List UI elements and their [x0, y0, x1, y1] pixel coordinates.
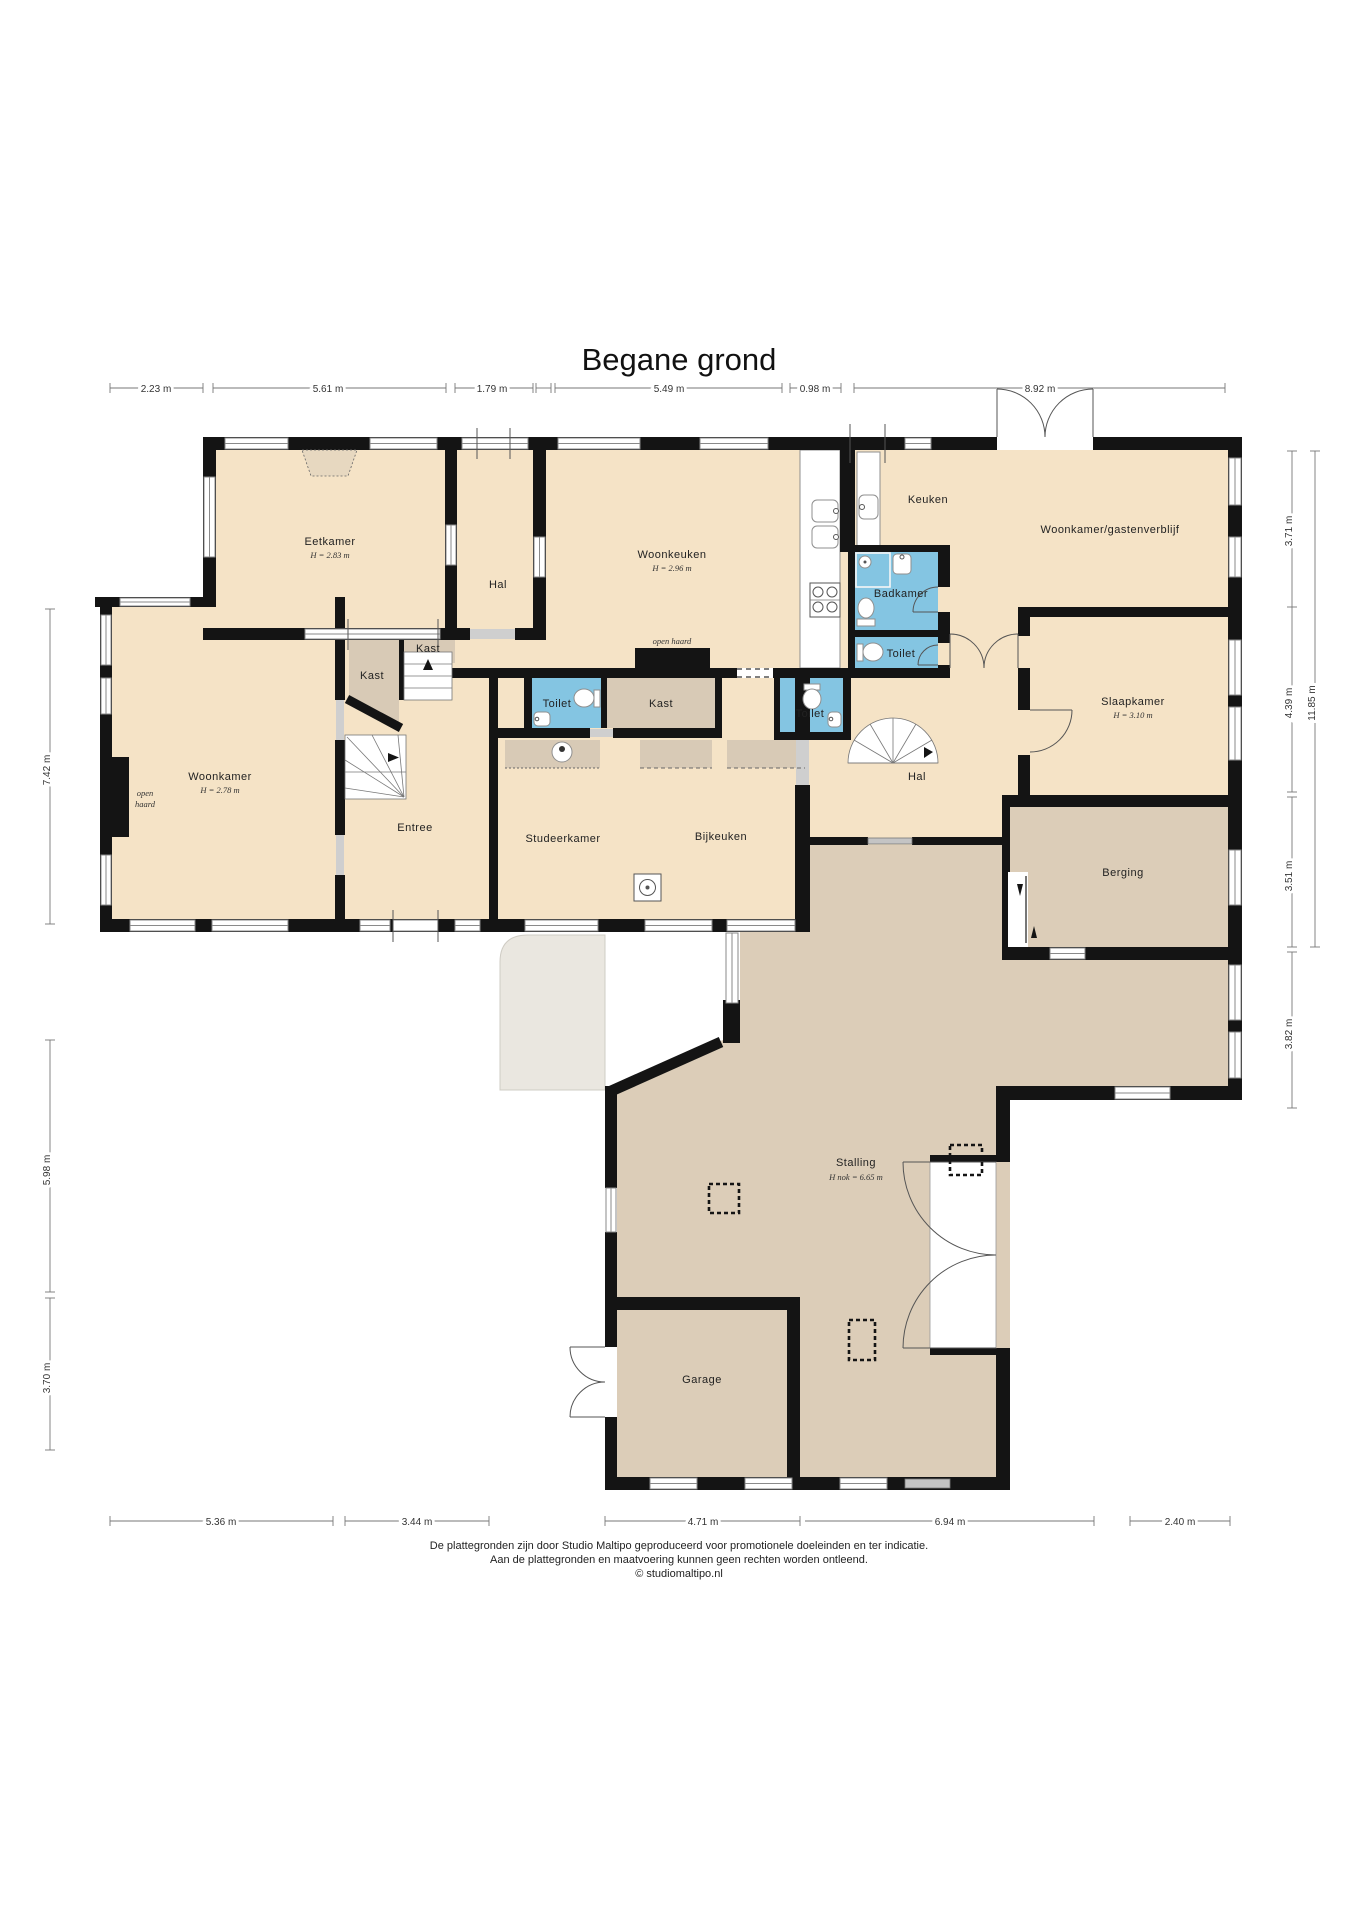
fireplace — [635, 648, 710, 668]
footer-line-1: De plattegronden zijn door Studio Maltip… — [430, 1540, 928, 1552]
room-label-entree: Entree — [397, 822, 432, 834]
dim-right-3: 3.51 m — [1284, 861, 1295, 892]
floor-plan-svg: 2.23 m 5.61 m 1.79 m 5.49 m 0.98 m 8.92 … — [0, 0, 1358, 1920]
dim-bottom-3: 4.71 m — [688, 1517, 719, 1528]
room-label-studeerkamer: Studeerkamer — [525, 833, 600, 845]
dim-bottom-2: 3.44 m — [402, 1517, 433, 1528]
room-label-woonkamer: Woonkamer — [188, 771, 252, 783]
room-label-keuken: Keuken — [908, 494, 948, 506]
entry-double-door — [997, 389, 1093, 450]
label-open-haard-woonkeuken: open haard — [653, 636, 692, 646]
toilet-icon — [857, 598, 875, 626]
room-height-woonkamer: H = 2.78 m — [199, 785, 239, 795]
chimney — [302, 450, 357, 476]
dim-right-5: 11.85 m — [1307, 685, 1318, 720]
footer-line-2: Aan de plattegronden en maatvoering kunn… — [490, 1554, 868, 1566]
hob-icon — [810, 583, 840, 617]
floor-fills — [100, 437, 1242, 1490]
room-label-kast-trap-boven: Kast — [416, 643, 440, 655]
room-height-slaapkamer: H = 3.10 m — [1112, 710, 1152, 720]
room-label-berging: Berging — [1102, 867, 1143, 879]
floorplan-page: 2.23 m 5.61 m 1.79 m 5.49 m 0.98 m 8.92 … — [0, 0, 1358, 1920]
washing-machine-icon — [634, 874, 661, 901]
dim-left-1: 7.42 m — [42, 755, 53, 786]
dim-top-1: 2.23 m — [141, 384, 172, 395]
room-label-hal-beneden: Hal — [908, 771, 926, 783]
room-label-garage: Garage — [682, 1374, 722, 1386]
dim-left-2: 5.98 m — [42, 1155, 53, 1186]
dim-right-4: 3.82 m — [1284, 1019, 1295, 1050]
label-open-haard-1: open — [137, 788, 154, 798]
footer-line-3: © studiomaltipo.nl — [635, 1568, 723, 1580]
room-label-bijkeuken: Bijkeuken — [695, 831, 747, 843]
dashed-opening — [737, 668, 773, 678]
room-label-woonkamer-gastenverblijf: Woonkamer/gastenverblijf — [1041, 524, 1180, 536]
dim-top-5: 0.98 m — [800, 384, 831, 395]
room-label-stalling: Stalling — [836, 1157, 876, 1169]
room-height-woonkeuken: H = 2.96 m — [651, 563, 691, 573]
dim-right-1: 3.71 m — [1284, 516, 1295, 547]
dim-top-3: 1.79 m — [477, 384, 508, 395]
footer: De plattegronden zijn door Studio Maltip… — [430, 1540, 928, 1580]
room-label-toilet-badkamer: Toilet — [887, 648, 916, 660]
room-height-stalling: H nok = 6.65 m — [828, 1172, 883, 1182]
dim-top-6: 8.92 m — [1025, 384, 1056, 395]
room-label-kast-trap: Kast — [360, 670, 384, 682]
dim-right-2: 4.39 m — [1284, 688, 1295, 719]
room-label-kast-gang: Kast — [649, 698, 673, 710]
page-title: Begane grond — [582, 342, 777, 377]
room-label-toilet-rechts: Toilet — [796, 708, 825, 720]
dim-top-4: 5.49 m — [654, 384, 685, 395]
straight-stair — [404, 652, 452, 700]
garage-double-door — [570, 1347, 605, 1417]
dim-bottom-4: 6.94 m — [935, 1517, 966, 1528]
dim-bottom-1: 5.36 m — [206, 1517, 237, 1528]
room-height-eetkamer: H = 2.83 m — [309, 550, 349, 560]
sliding-door — [868, 838, 912, 844]
fireplace — [104, 757, 129, 837]
dim-left-3: 3.70 m — [42, 1363, 53, 1394]
porch-area — [500, 935, 605, 1090]
dim-top-2: 5.61 m — [313, 384, 344, 395]
room-label-slaapkamer: Slaapkamer — [1101, 696, 1165, 708]
room-label-eetkamer: Eetkamer — [304, 536, 355, 548]
label-open-haard-2: haard — [135, 799, 156, 809]
room-label-toilet-links: Toilet — [543, 698, 572, 710]
dim-bottom-5: 2.40 m — [1165, 1517, 1196, 1528]
room-label-badkamer: Badkamer — [874, 588, 928, 600]
winder-stair — [345, 735, 406, 799]
room-label-woonkeuken: Woonkeuken — [637, 549, 706, 561]
kitchen-island — [800, 450, 840, 668]
room-label-hal-boven: Hal — [489, 579, 507, 591]
toilet-icon — [857, 643, 883, 661]
